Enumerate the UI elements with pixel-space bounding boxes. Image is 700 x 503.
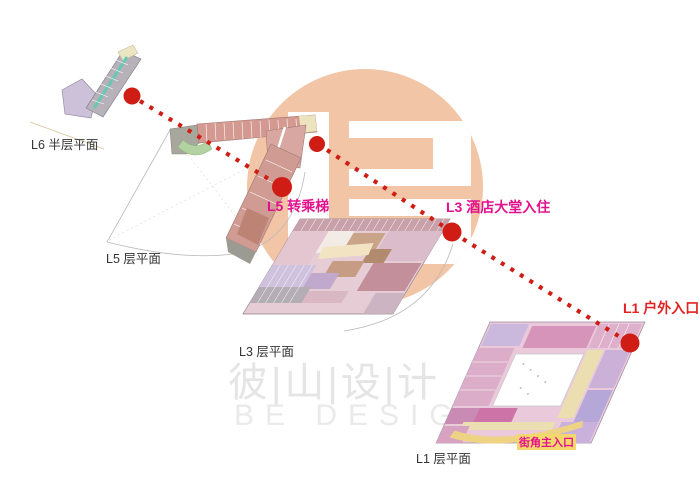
l6-floor-plan <box>62 45 141 118</box>
l1-outdoor-entrance-annotation: L1 户外入口 <box>623 298 699 318</box>
l5-plan-label: L5 层平面 <box>106 248 161 267</box>
path-node-dot-l6 <box>124 88 141 105</box>
path-node-dot-l5-exit <box>309 136 325 152</box>
l6-plan-label: L6 半层平面 <box>31 134 98 153</box>
path-node-dot-l5 <box>272 177 292 197</box>
circulation-diagram: 彼|山|设|计 BE DESIGN <box>0 0 700 503</box>
l5-transfer-annotation: L5 转乘梯 <box>267 196 329 216</box>
l1-floor-plan <box>436 322 645 443</box>
l1-plan-label: L1 层平面 <box>416 448 471 467</box>
l3-plan-label: L3 层平面 <box>239 341 294 360</box>
path-node-dot-l3 <box>443 223 462 242</box>
l3-hotel-lobby-annotation: L3 酒店大堂入住 <box>446 197 550 217</box>
street-corner-entrance-label: 街角主入口 <box>517 434 576 450</box>
path-node-dot-l1 <box>621 334 640 353</box>
diagram-canvas <box>0 0 700 503</box>
